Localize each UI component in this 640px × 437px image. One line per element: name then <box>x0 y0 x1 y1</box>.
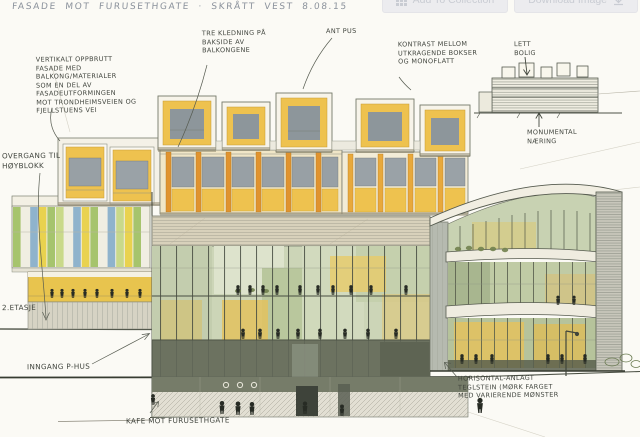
balcony-box <box>420 105 470 157</box>
grid-icon <box>396 0 407 6</box>
add-to-collection-button[interactable]: Add To Collection <box>382 0 509 13</box>
note-wood-cladding: TRE KLEDNING PÅ BAKSIDE AV BALKONGENE <box>202 29 274 55</box>
sketch-title: FASADE MOT FURUSETHGATE · SKRÅTT VEST 8.… <box>12 2 348 12</box>
screenshot-stage: Add To Collection Download Image FASADE … <box>0 0 640 437</box>
tower-slab-2 <box>446 303 598 319</box>
residential-upper-boxes <box>158 93 470 157</box>
note-brick: HORISONTAL-ANLAGT TEGLSTEIN (MØRK FARGET… <box>458 373 582 400</box>
note-facade: VERTIKALT OPPBRUTT FASADE MED BALKONG/MA… <box>36 54 165 115</box>
download-icon <box>613 0 624 6</box>
download-image-label: Download Image <box>528 0 607 6</box>
balcony-box <box>222 102 270 151</box>
inset-up-arrow <box>536 113 542 127</box>
download-image-button[interactable]: Download Image <box>514 0 638 13</box>
balcony-box <box>276 93 332 153</box>
tower-slab-1 <box>446 249 598 263</box>
massing-inset-sketch <box>474 57 640 127</box>
note-monumental: MONUMENTAL NÆRING <box>527 128 607 146</box>
curved-tower <box>430 184 625 371</box>
note-cafe: KAFE MOT FURUSETHGATE <box>126 415 230 426</box>
viewer-toolbar: Add To Collection Download Image <box>382 0 638 13</box>
note-second-floor: 2.ETASJE <box>2 303 36 313</box>
balcony-box <box>356 99 414 153</box>
balcony-box <box>158 96 216 152</box>
add-to-collection-label: Add To Collection <box>413 0 495 6</box>
cafe-doorway <box>296 386 318 416</box>
basement-wall <box>152 377 468 417</box>
note-contrast: KONTRAST MELLOM UTKRAGENDE BOKSER OG MON… <box>398 39 494 66</box>
note-transition: OVERGANG TIL HØYBLOKK <box>2 151 74 171</box>
note-parking-entrance: INNGANG P-HUS <box>27 362 90 372</box>
note-light-housing: LETT BOLIG <box>514 40 536 57</box>
note-plaster: ANT PUS <box>326 27 357 36</box>
